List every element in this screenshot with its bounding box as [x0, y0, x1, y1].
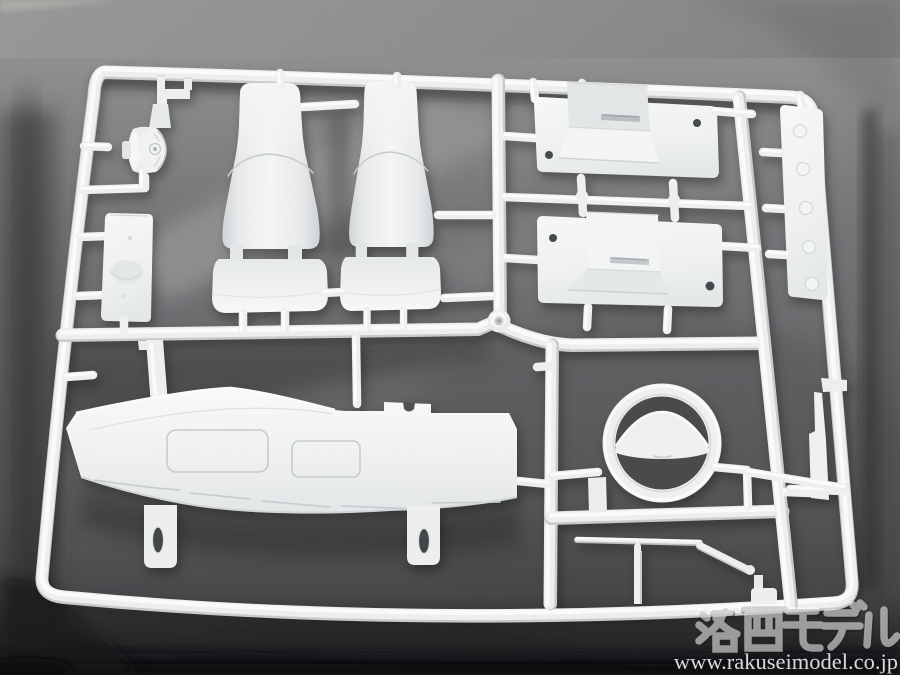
svg-text:www.rakuseimodel.co.jp: www.rakuseimodel.co.jp	[674, 649, 898, 674]
